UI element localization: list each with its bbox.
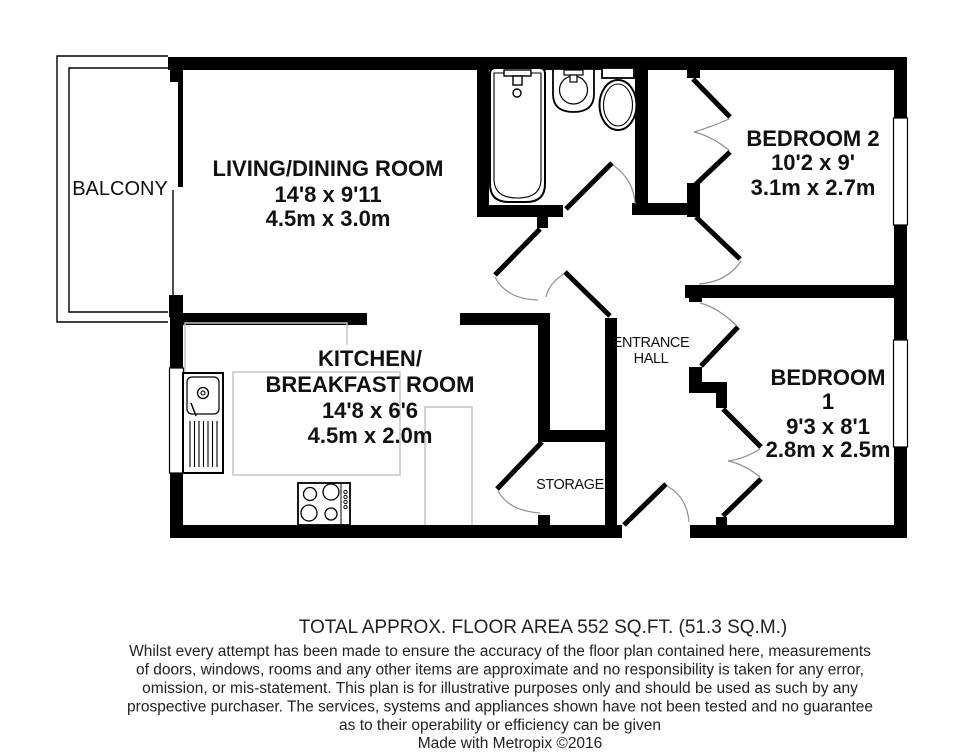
hob-icon (298, 483, 350, 525)
bedroom1-dim-metric: 2.8m x 2.5m (766, 437, 891, 462)
entrance-hall-label-line1: ENTRANCE (613, 335, 690, 351)
toilet-icon (600, 68, 637, 130)
disclaimer-line-5: as to their operability or efficiency ca… (339, 717, 661, 734)
bedroom1-window (894, 340, 908, 447)
kitchen-name-line2: BREAKFAST ROOM (266, 372, 475, 397)
bedroom1-wardrobe-door-top (723, 409, 761, 447)
balcony-label: BALCONY (72, 178, 168, 200)
bedroom2-name: BEDROOM 2 (746, 126, 879, 151)
living-room-dim-imperial: 14'8 x 9'11 (274, 182, 381, 207)
disclaimer-line-4: prospective purchaser. The services, sys… (127, 699, 873, 716)
footer: TOTAL APPROX. FLOOR AREA 552 SQ.FT. (51.… (127, 617, 873, 752)
kitchen-dim-imperial: 14'8 x 6'6 (322, 398, 418, 423)
metropix-credit: Made with Metropix ©2016 (418, 735, 603, 752)
entrance-hall-label-line2: HALL (634, 351, 669, 367)
bedroom1-name-line2: 1 (822, 389, 834, 414)
disclaimer-line-1: Whilst every attempt has been made to en… (129, 643, 871, 660)
bedroom2-wardrobe-door-top (693, 79, 730, 117)
bedroom2-dim-imperial: 10'2 x 9' (771, 150, 855, 175)
floorplan-page: LIVING/DINING ROOM 14'8 x 9'11 4.5m x 3.… (0, 0, 980, 753)
bedroom1-name-line1: BEDROOM (771, 365, 886, 390)
kitchen-sink-icon (183, 373, 223, 473)
cupboard-door (565, 272, 610, 316)
floorplan-svg: LIVING/DINING ROOM 14'8 x 9'11 4.5m x 3.… (0, 0, 980, 753)
bedroom2-dim-metric: 3.1m x 2.7m (751, 175, 876, 200)
bedroom2-window (894, 118, 908, 225)
bedroom2-wardrobe-door-bottom (693, 152, 730, 187)
living-room-dim-metric: 4.5m x 3.0m (266, 206, 391, 231)
floor-area-title: TOTAL APPROX. FLOOR AREA 552 SQ.FT. (51.… (299, 617, 788, 638)
kitchen-window (170, 368, 184, 473)
storage-label: STORAGE (536, 477, 605, 493)
kitchen-name-line1: KITCHEN/ (318, 346, 422, 371)
bathroom-door (566, 163, 612, 209)
bedroom1-wardrobe-door-bottom (723, 479, 761, 516)
disclaimer-line-3: omission, or mis-statement. This plan is… (142, 680, 858, 697)
front-door (624, 484, 666, 525)
bedroom2-door (696, 217, 740, 259)
living-room-name: LIVING/DINING ROOM (213, 156, 444, 181)
bath-icon (490, 68, 545, 202)
bedroom1-dim-imperial: 9'3 x 8'1 (786, 414, 870, 439)
basin-icon (553, 69, 594, 112)
disclaimer-line-2: of doors, windows, rooms and any other i… (136, 662, 864, 679)
bedroom1-door (701, 327, 738, 366)
living-room-door (495, 229, 540, 275)
kitchen-dim-metric: 4.5m x 2.0m (308, 423, 433, 448)
